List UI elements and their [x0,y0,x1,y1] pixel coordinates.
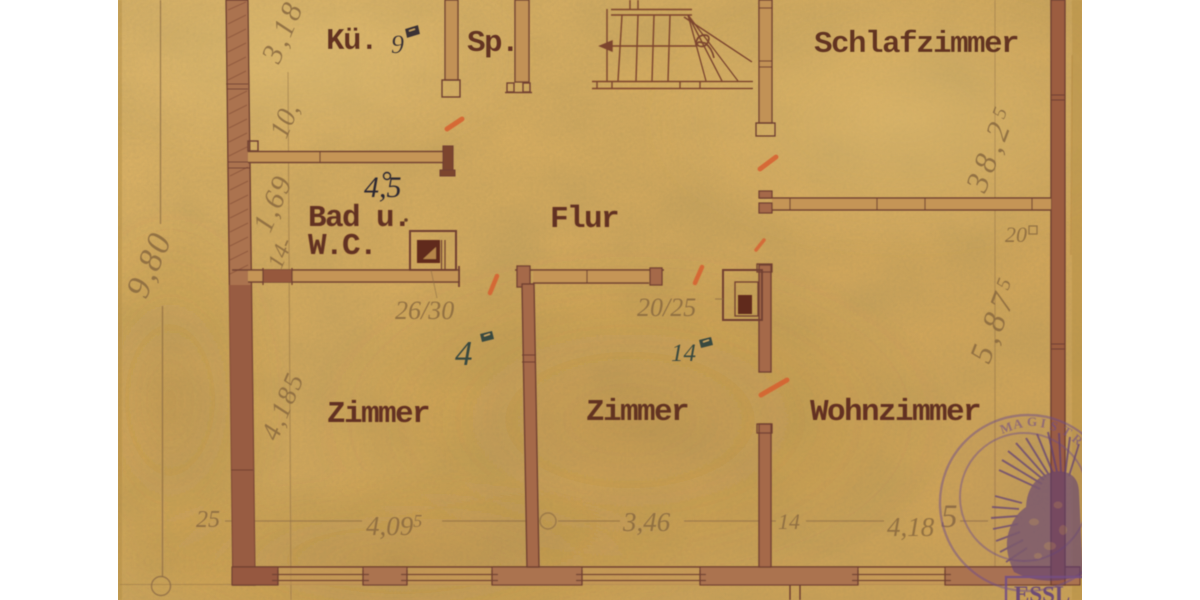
svg-text:14: 14 [778,509,800,534]
svg-text:Kü.: Kü. [326,24,377,59]
svg-text:Wohnzimmer: Wohnzimmer [810,395,980,430]
svg-text:W.C.: W.C. [308,229,376,264]
svg-text:4,5: 4,5 [364,171,402,204]
svg-text:25: 25 [196,507,220,533]
svg-text:Schlafzimmer: Schlafzimmer [814,27,1018,62]
svg-text:Zimmer: Zimmer [586,395,688,430]
svg-text:ESSL: ESSL [1014,582,1070,600]
svg-text:4,18: 4,18 [887,512,935,542]
svg-text:26/30: 26/30 [395,296,454,325]
svg-text:4: 4 [455,334,473,373]
svg-text:9: 9 [391,30,404,59]
svg-text:14: 14 [671,340,696,367]
svg-text:Flur: Flur [550,202,618,237]
svg-text:Zimmer: Zimmer [327,397,429,432]
svg-text:Sp.: Sp. [467,26,518,61]
svg-text:20: 20 [1005,222,1027,247]
svg-text:3,46: 3,46 [622,507,671,537]
svg-text:20/25: 20/25 [637,293,696,322]
